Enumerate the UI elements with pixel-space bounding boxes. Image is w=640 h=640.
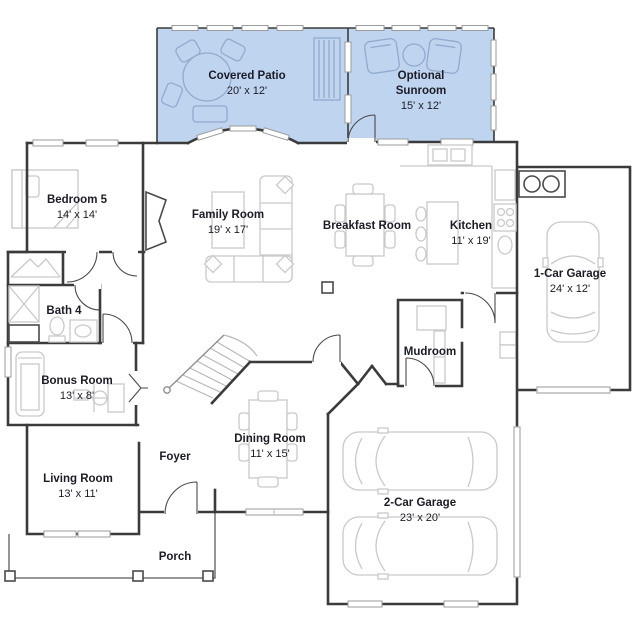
one-car-garage-door [537, 387, 610, 393]
shower [9, 286, 39, 322]
room-label-one-car-garage: 1-Car Garage [534, 268, 606, 280]
room-label-living-room: Living Room [43, 473, 113, 485]
room-label-porch: Porch [159, 551, 192, 563]
room-label-mudroom: Mudroom [404, 346, 456, 358]
two-car-garage-door [514, 427, 520, 577]
stair-hall-door [313, 335, 340, 362]
room-dims-kitchen: 11' x 19' [451, 235, 490, 247]
dining-window [246, 509, 303, 515]
room-label-family-room: Family Room [192, 209, 264, 221]
room-label-bedroom-5: Bedroom 5 [47, 194, 108, 206]
garage-entry-steps [500, 332, 516, 358]
staircase [164, 335, 257, 398]
room-label-dining-room: Dining Room [234, 433, 306, 445]
room-dims-bedroom-5: 14' x 14' [57, 209, 97, 221]
bedroom5-door [67, 252, 97, 282]
stair-newel [164, 387, 170, 393]
porch-post [203, 571, 213, 581]
car [343, 428, 497, 494]
closet-rod [11, 259, 60, 277]
mudroom-door [406, 358, 434, 386]
room-dims-family-room: 19' x 17' [208, 224, 248, 236]
room-dims-optional-sunroom: 15' x 12' [401, 100, 441, 112]
room-label-breakfast-room: Breakfast Room [323, 220, 411, 232]
bonus-hall-door [103, 314, 132, 343]
range [428, 145, 472, 165]
porch-post [5, 571, 15, 581]
kitchen-island [416, 202, 458, 264]
column [322, 282, 333, 293]
porch-post [133, 571, 143, 581]
room-label-kitchen: Kitchen [450, 220, 492, 232]
room-label-two-car-garage: 2-Car Garage [384, 497, 456, 509]
mudroom-bench [417, 306, 446, 383]
room-label-optional-sunroom: Optional [398, 70, 445, 82]
room-dims-one-car-garage: 24' x 12' [550, 283, 590, 295]
room-dims-dining-room: 11' x 15' [250, 448, 289, 460]
room-label-foyer: Foyer [159, 451, 191, 463]
treadmill [16, 352, 44, 416]
porch-outline [5, 512, 215, 581]
linen-cabinet [9, 325, 39, 342]
utility-sink [519, 171, 565, 197]
room-dims-two-car-garage: 23' x 20' [400, 512, 440, 524]
bath-sink [70, 320, 97, 342]
room-dims-bonus-room: 13' x 8' [60, 390, 94, 402]
garage-doors [514, 387, 610, 577]
room-label-bonus-room: Bonus Room [41, 375, 113, 387]
fireplace [146, 192, 166, 250]
room-dims-covered-patio: 20' x 12' [227, 85, 267, 97]
cooktop [494, 204, 516, 231]
floor-plan: Covered Patio20' x 12'OptionalSunroom15'… [0, 0, 640, 640]
room-label-covered-patio: Covered Patio [208, 70, 285, 82]
car [543, 222, 603, 342]
kitchen-hall-door [465, 293, 495, 323]
toilet [49, 317, 65, 342]
floor-plan-page: Covered Patio20' x 12'OptionalSunroom15'… [0, 0, 640, 640]
room-label-bath-4: Bath 4 [46, 305, 82, 317]
room-dims-living-room: 13' x 11' [58, 488, 97, 500]
room-label-optional-sunroom: Sunroom [396, 85, 446, 97]
